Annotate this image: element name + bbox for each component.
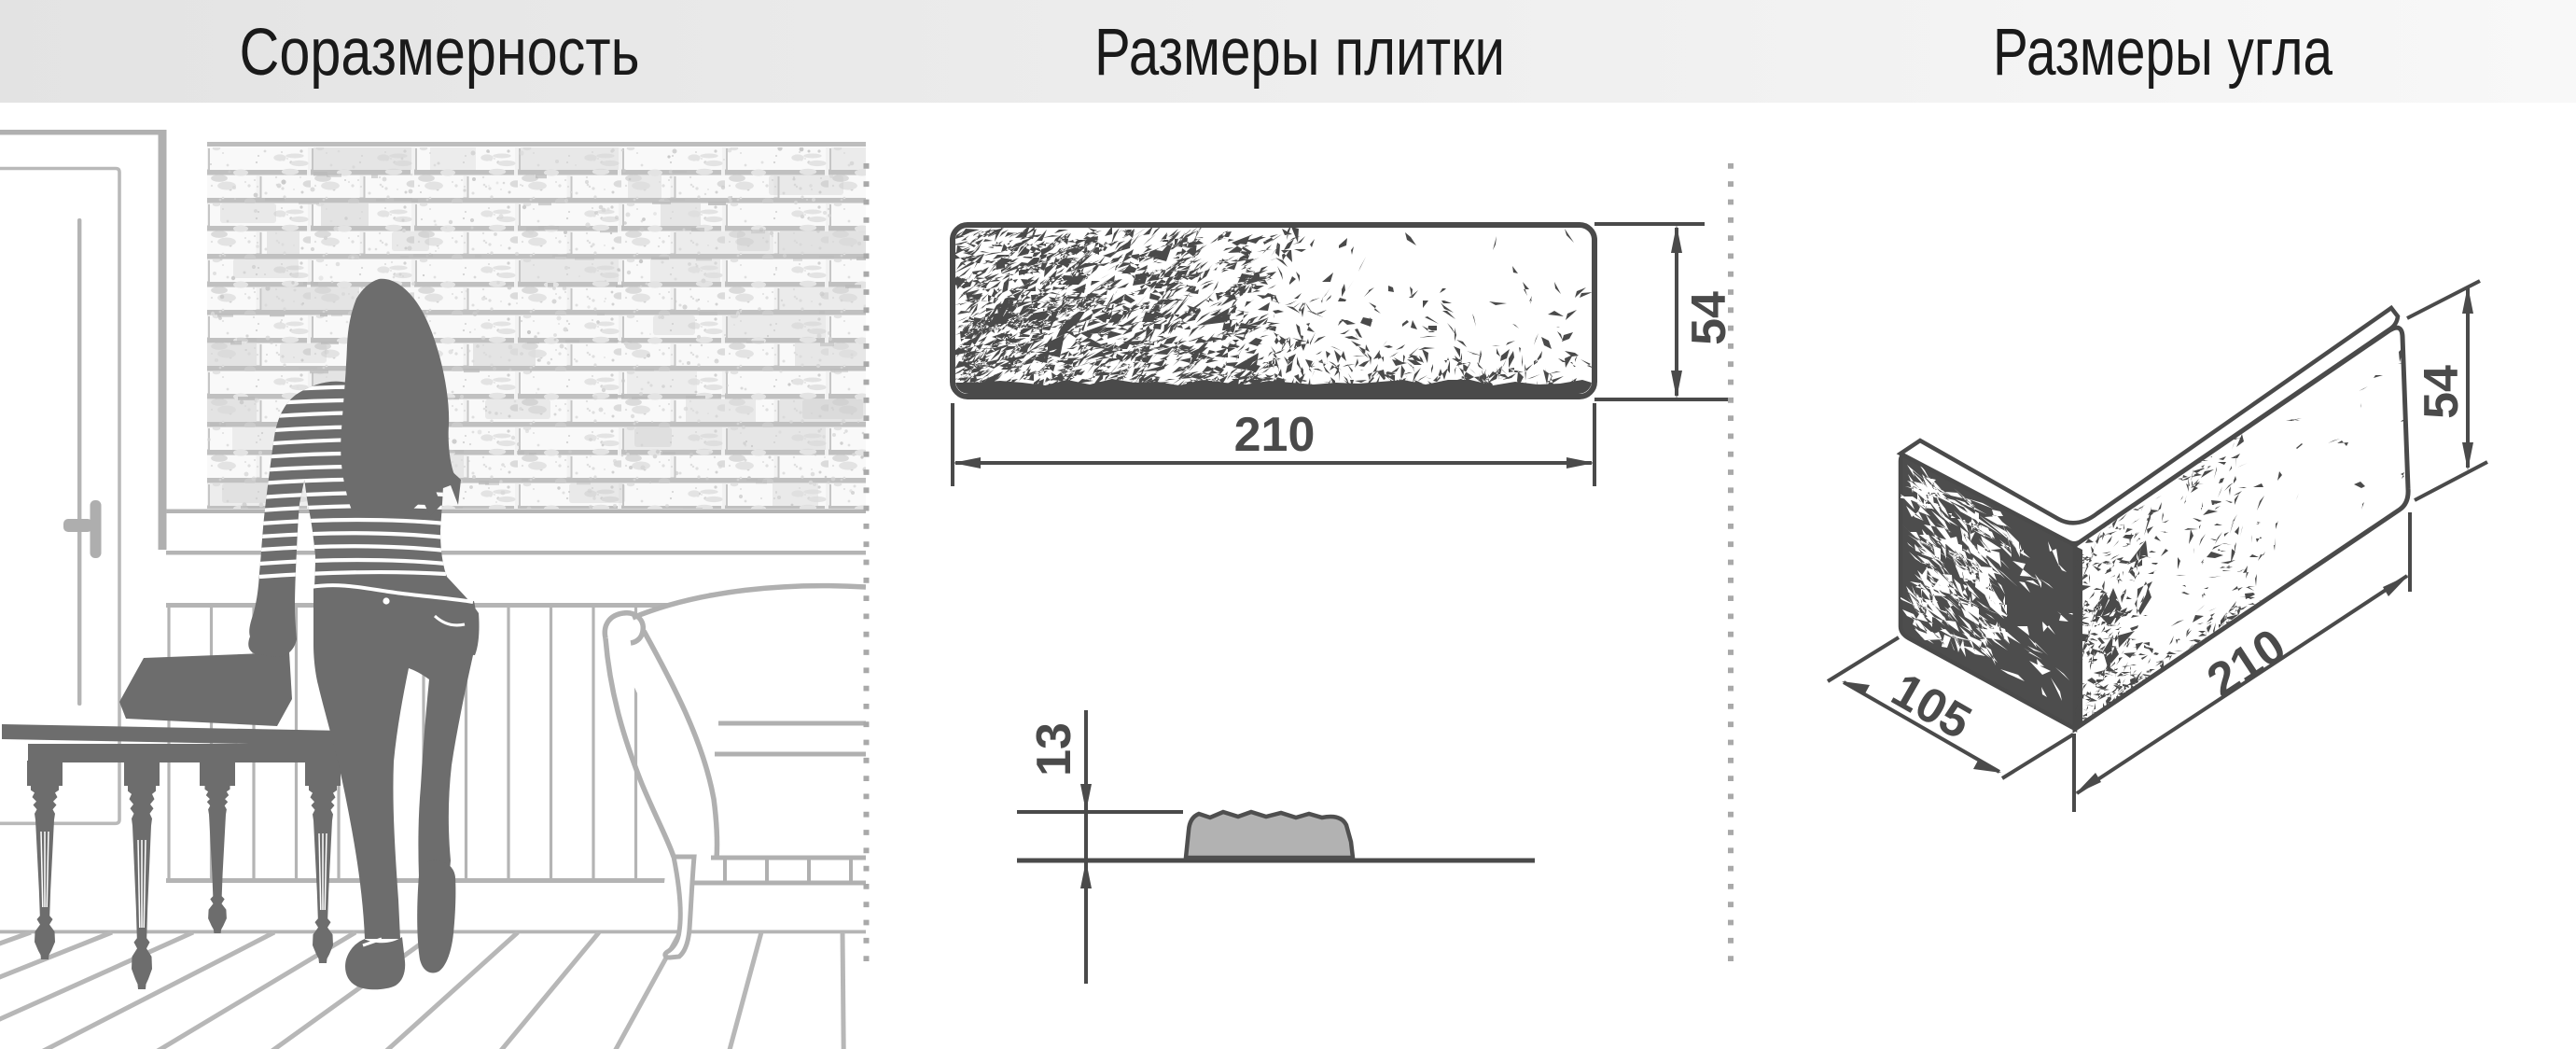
svg-text:Соразмерность: Соразмерность bbox=[240, 16, 640, 90]
svg-text:54: 54 bbox=[2415, 365, 2469, 419]
svg-text:54: 54 bbox=[1682, 291, 1736, 345]
svg-text:Размеры плитки: Размеры плитки bbox=[1094, 16, 1505, 90]
svg-text:Размеры угла: Размеры угла bbox=[1993, 16, 2332, 90]
svg-text:210: 210 bbox=[1234, 408, 1316, 462]
svg-text:13: 13 bbox=[1027, 722, 1081, 776]
